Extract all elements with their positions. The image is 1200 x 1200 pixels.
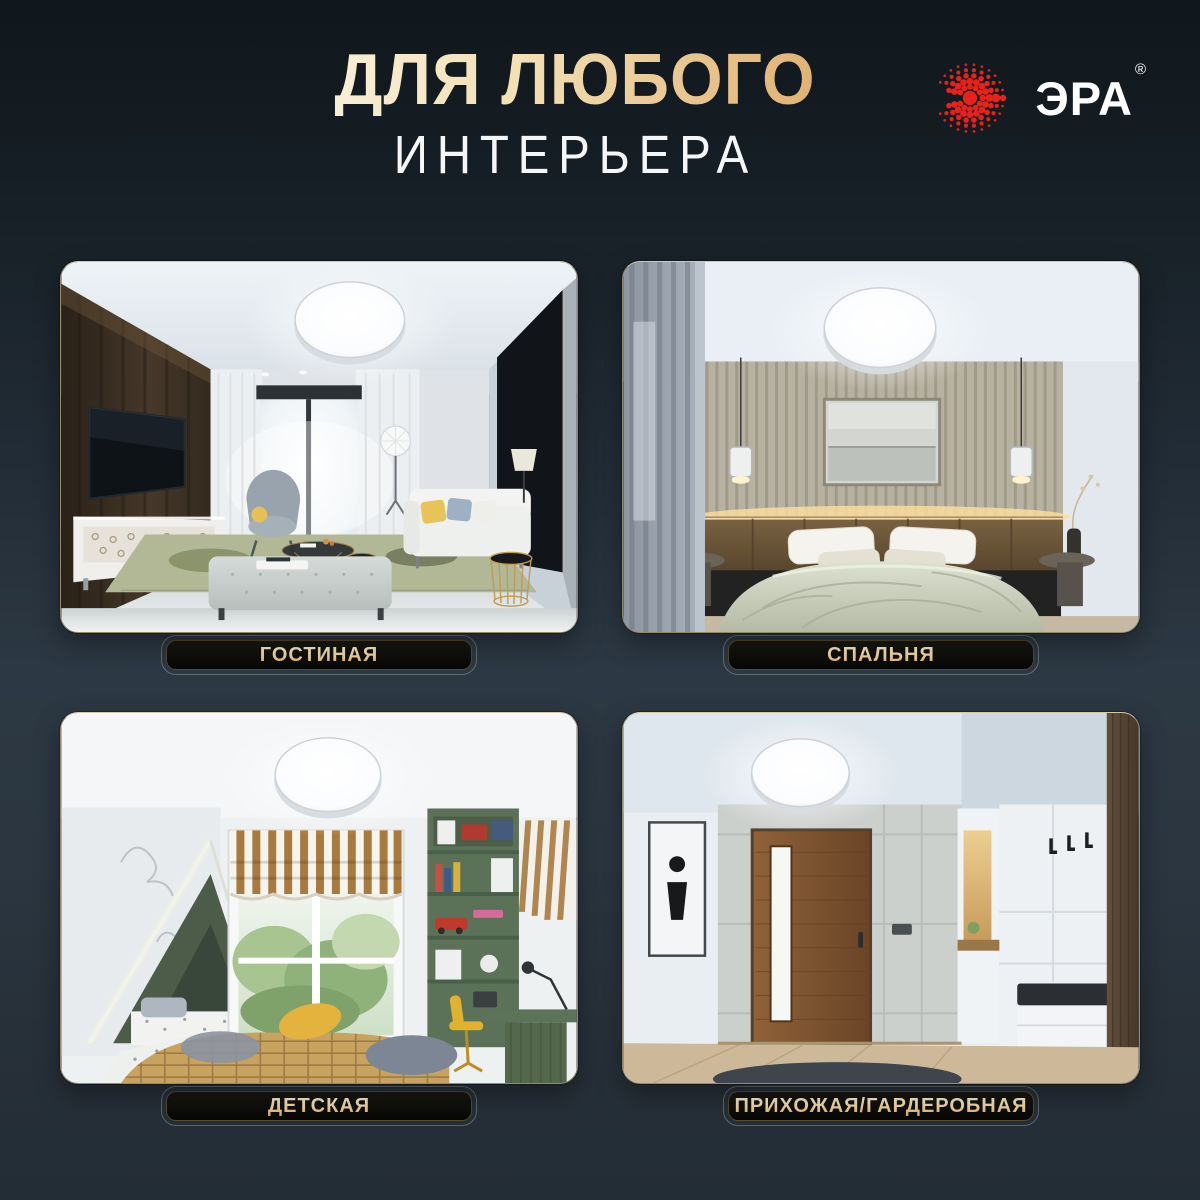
interior-cards-grid: ГОСТИНАЯ [60, 261, 1140, 1126]
ceiling-light-product [242, 262, 457, 385]
brand-logo: ЭРА® [917, 42, 1144, 154]
photo-hallway [622, 712, 1140, 1084]
dark-wood-panel [1107, 713, 1139, 1083]
room-label-plate: ДЕТСКАЯ [161, 1086, 477, 1126]
light-switch [892, 924, 912, 935]
scene-living-room [61, 262, 577, 632]
ceiling-light-product [701, 717, 900, 832]
page-title-line2: ИНТЕРЬЕРА [393, 128, 756, 182]
curtains-left [623, 262, 705, 632]
photo-living-room [60, 261, 578, 633]
room-label: ГОСТИНАЯ [260, 644, 378, 667]
roman-blind [230, 830, 401, 899]
tv [89, 407, 184, 499]
room-label: СПАЛЬНЯ [827, 644, 935, 667]
room-label: ПРИХОЖАЯ/ГАРДЕРОБНАЯ [734, 1095, 1027, 1118]
interior-card-living-room: ГОСТИНАЯ [60, 261, 578, 675]
room-label-plate: СПАЛЬНЯ [723, 635, 1039, 675]
brand-name: ЭРА® [1035, 75, 1144, 122]
room-label: ДЕТСКАЯ [268, 1095, 370, 1118]
promo-page: { "page": { "background_top": "#10171d",… [0, 0, 1200, 1200]
headboard-panel [693, 506, 1071, 571]
entry-door [751, 828, 872, 1045]
wall-art-abstract [649, 822, 705, 955]
photo-bedroom [622, 261, 1140, 633]
ceiling-light-product [221, 717, 436, 836]
era-sunburst-icon [917, 42, 1029, 154]
interior-card-bedroom: СПАЛЬНЯ [622, 261, 1140, 675]
scene-hallway [623, 713, 1139, 1083]
ceiling-light-product [769, 268, 992, 391]
room-label-plate: ГОСТИНАЯ [161, 635, 477, 675]
hallway-floor [623, 1043, 1138, 1083]
page-title-line1: ДЛЯ ЛЮБОГО [334, 44, 815, 116]
room-label-plate: ПРИХОЖАЯ/ГАРДЕРОБНАЯ [723, 1086, 1039, 1126]
scene-bedroom [623, 262, 1139, 632]
interior-card-hallway: ПРИХОЖАЯ/ГАРДЕРОБНАЯ [622, 712, 1140, 1126]
interior-card-kids-room: ДЕТСКАЯ [60, 712, 578, 1126]
registered-mark: ® [1135, 61, 1146, 78]
photo-kids-room [60, 712, 578, 1084]
wall-art [824, 399, 939, 485]
scene-kids-room [61, 713, 577, 1083]
